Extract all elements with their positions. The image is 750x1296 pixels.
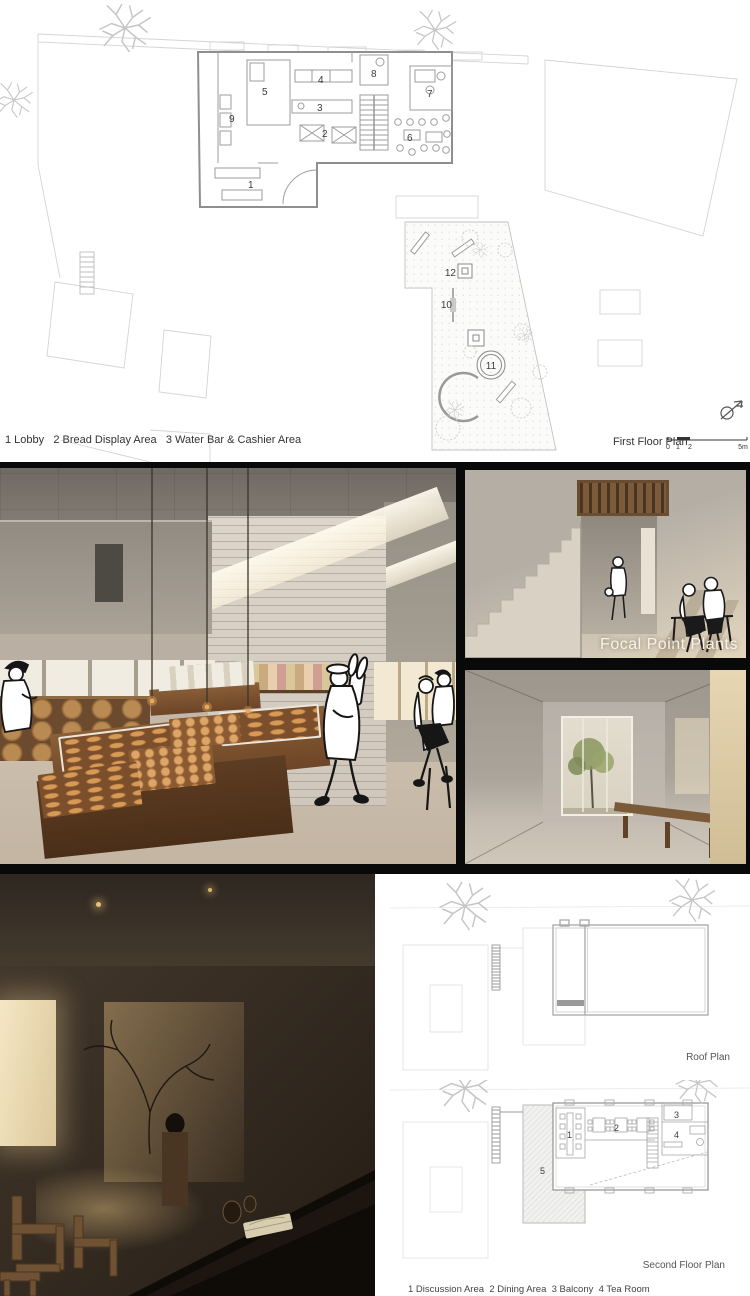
svg-text:11: 11 [486, 361, 497, 372]
svg-text:3: 3 [674, 1110, 679, 1120]
wood-bench [614, 802, 718, 858]
roof-ladder [492, 945, 500, 990]
svg-text:4: 4 [674, 1130, 679, 1140]
bench-room-render [465, 670, 746, 864]
svg-text:7: 7 [427, 89, 433, 100]
svg-text:2: 2 [614, 1123, 619, 1133]
svg-text:9: 9 [229, 114, 235, 125]
terrace-ladder [492, 1107, 523, 1163]
courtyard [405, 222, 556, 450]
roof-plan-label: Roof Plan [630, 1052, 730, 1063]
svg-text:2: 2 [322, 129, 328, 140]
render-caption: Focal Point Plants [600, 636, 738, 654]
svg-text:5m: 5m [738, 444, 748, 451]
svg-text:12: 12 [445, 268, 457, 279]
stair-steps [465, 522, 581, 658]
tea-room-render [0, 874, 375, 1296]
bottom-section: Roof Plan [0, 874, 750, 1296]
tea-room-overlay [0, 874, 375, 1296]
bakery-interior-render [0, 468, 456, 864]
branch-silhouette [84, 1020, 214, 1154]
svg-text:8: 8 [371, 69, 377, 80]
sketch-figure-corridor [605, 557, 626, 620]
site-ghost [403, 1122, 488, 1258]
presentation-board: 1 2 3 4 5 6 7 8 9 10 11 12 [0, 0, 750, 1296]
site-ghost [403, 928, 585, 1070]
svg-text:2: 2 [688, 444, 692, 451]
second-floor-plan-label: Second Floor Plan [600, 1260, 725, 1271]
pendant-bulbs [147, 696, 253, 716]
svg-text:10: 10 [441, 300, 453, 311]
roof-outline [553, 920, 708, 1015]
warm-right-wall [710, 670, 746, 864]
stair-overlay [465, 470, 746, 658]
render-band: Focal Point Plants [0, 462, 750, 874]
sketch-figure-walking-woman [314, 653, 369, 806]
svg-text:4: 4 [318, 75, 324, 86]
bench-room-overlay [465, 670, 746, 864]
svg-text:5: 5 [540, 1166, 545, 1176]
wood-chairs [0, 1196, 118, 1296]
north-arrow-icon [721, 401, 743, 419]
svg-text:3: 3 [317, 103, 323, 114]
first-floor-plan-section: 1 2 3 4 5 6 7 8 9 10 11 12 [0, 0, 750, 462]
legend-line: 1 Lobby 2 Bread Display Area 3 Water Bar… [5, 434, 301, 448]
first-floor-plan-drawing: 1 2 3 4 5 6 7 8 9 10 11 12 [0, 0, 750, 462]
legend-line: 1 Discussion Area 2 Dining Area 3 Balcon… [408, 1284, 650, 1296]
sketch-figure-baker [1, 662, 37, 732]
bakery-overlay [0, 468, 456, 864]
svg-text:6: 6 [407, 133, 413, 144]
roof-plan-drawing [390, 878, 750, 1078]
svg-text:5: 5 [262, 87, 268, 98]
svg-text:1: 1 [567, 1130, 572, 1140]
sketch-figure-seated-pair [414, 670, 454, 810]
staircase-render: Focal Point Plants [465, 470, 746, 658]
window-tree [563, 718, 627, 814]
pendant-lights [152, 468, 248, 708]
building-second-floor [553, 1100, 708, 1193]
wall-light-patch [675, 718, 709, 794]
svg-text:1: 1 [248, 180, 254, 191]
first-floor-plan-label: First Floor Plan [613, 436, 688, 448]
pedestal-and-vase [162, 1113, 188, 1206]
